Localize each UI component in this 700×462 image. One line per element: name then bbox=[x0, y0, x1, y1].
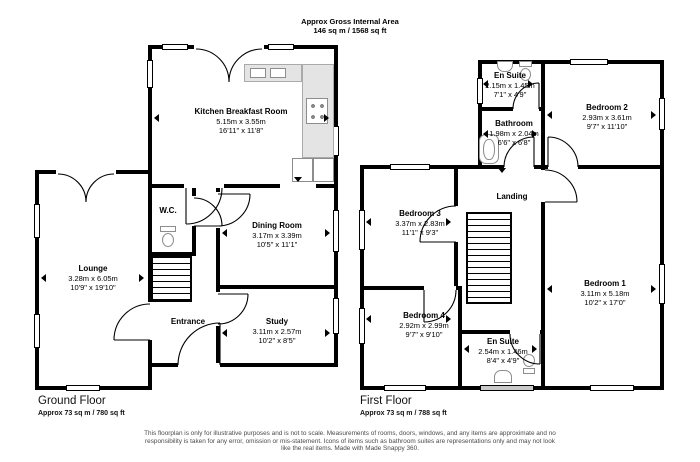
ground-floor-title: Ground Floor bbox=[38, 395, 106, 407]
disclaimer-text: This floorplan is only for illustrative … bbox=[140, 430, 560, 453]
door-arcs-overlay bbox=[0, 0, 700, 462]
ground-floor-area: Approx 73 sq m / 780 sq ft bbox=[38, 410, 125, 417]
door-arc bbox=[58, 49, 578, 365]
first-floor-title: First Floor bbox=[360, 395, 412, 407]
floorplan-page: { "header": { "title": "Approx Gross Int… bbox=[0, 0, 700, 462]
first-floor-area: Approx 73 sq m / 788 sq ft bbox=[360, 410, 447, 417]
